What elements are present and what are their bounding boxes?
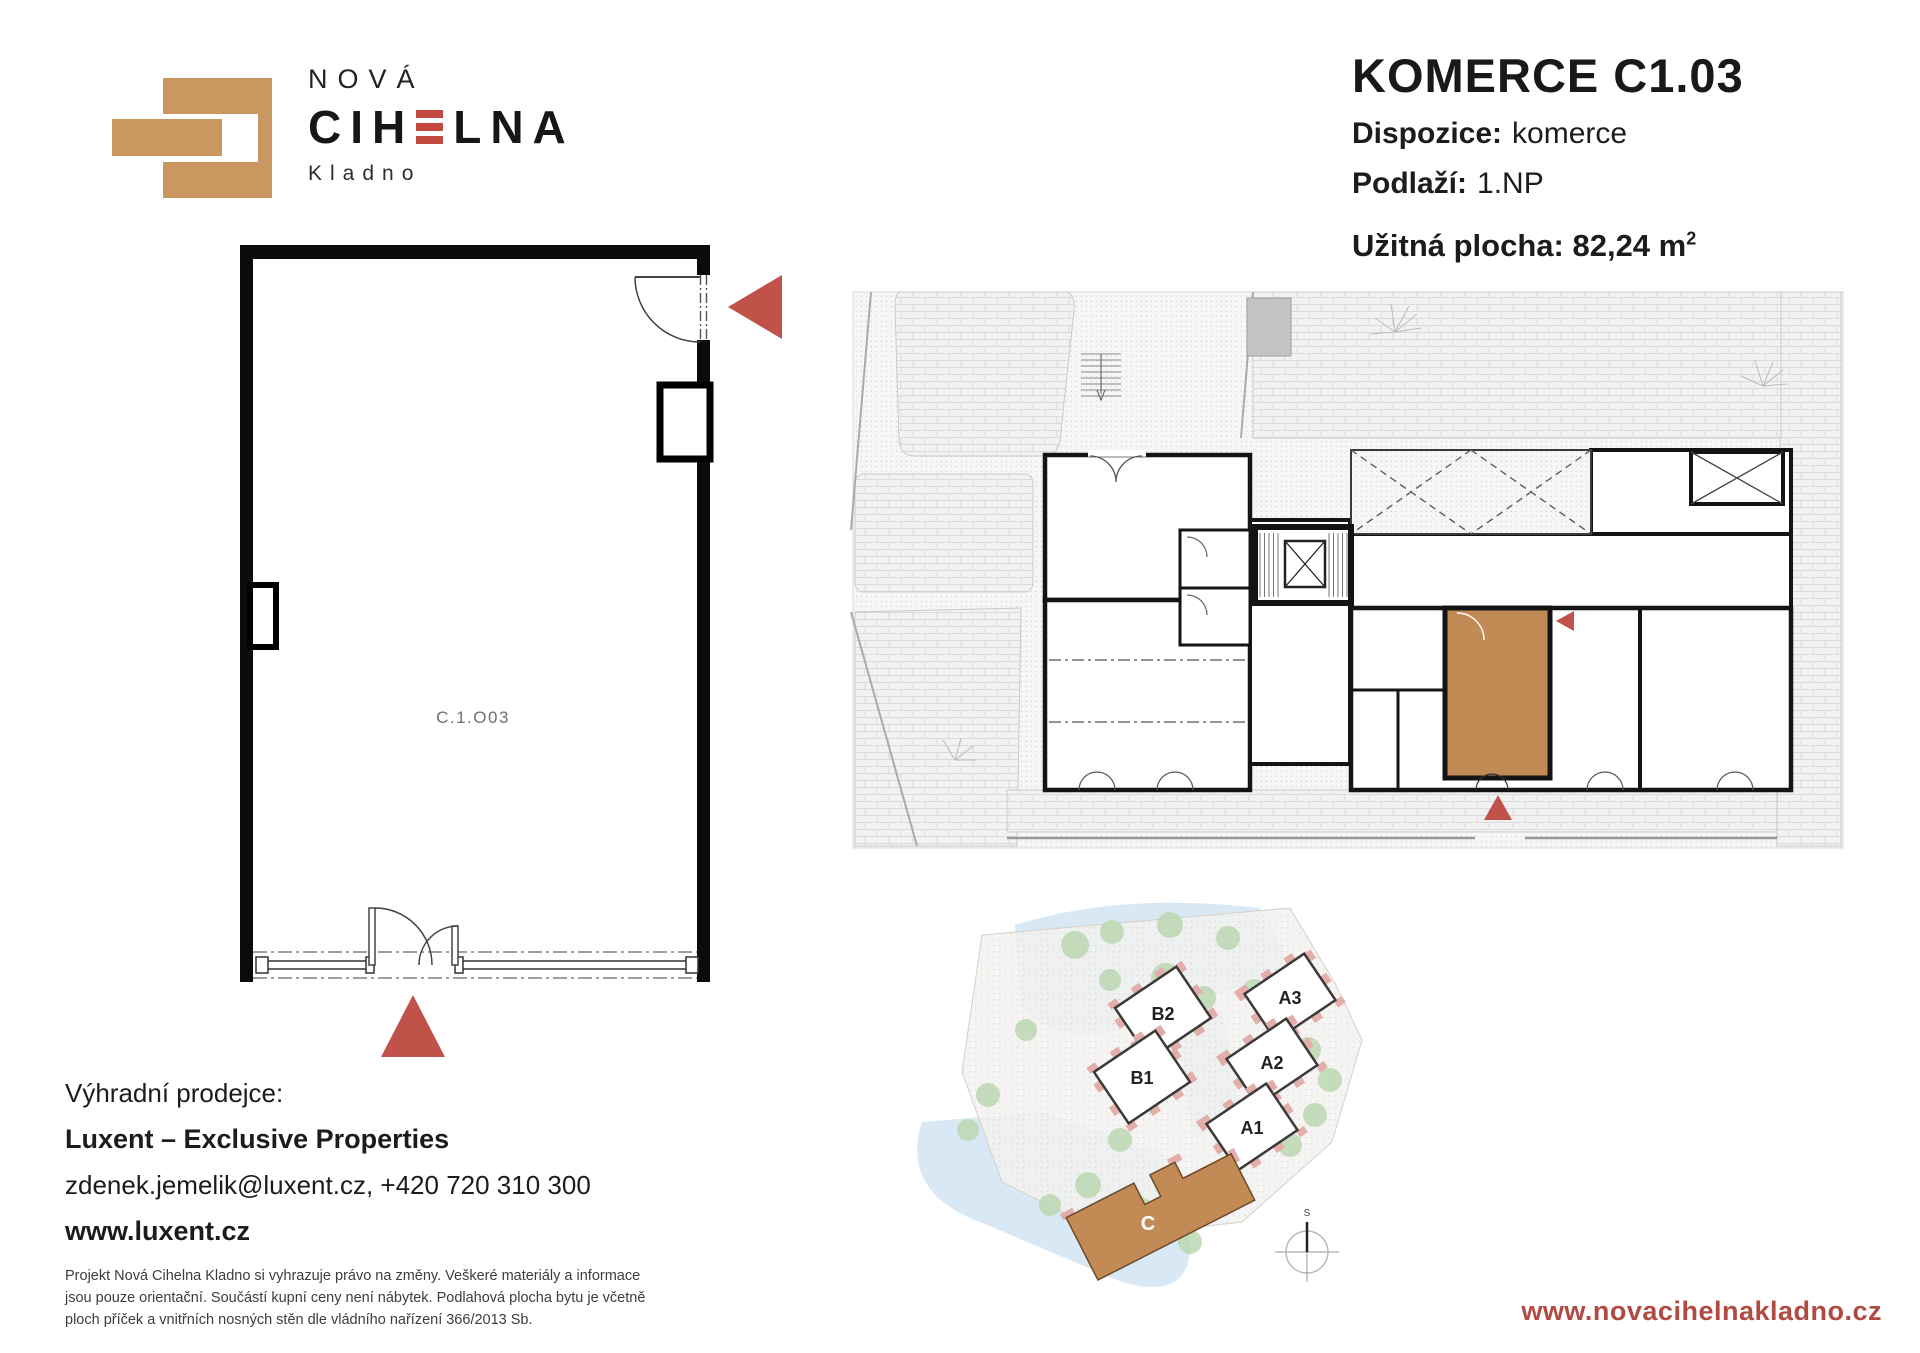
unit-header: KOMERCE C1.03 Dispozice:komerce Podlaží:… bbox=[1352, 48, 1912, 264]
spec-row-dispozice: Dispozice:komerce bbox=[1352, 115, 1912, 153]
building-label: B1 bbox=[1130, 1068, 1153, 1088]
building-label: A3 bbox=[1278, 988, 1301, 1008]
building-label: A1 bbox=[1240, 1118, 1263, 1138]
storefront-glazing bbox=[253, 952, 698, 978]
area-value: 82,24 m bbox=[1572, 228, 1686, 263]
brand-name-main: CIH LNA bbox=[308, 104, 575, 150]
spec-row-area: Užitná plocha: 82,24 m2 bbox=[1352, 228, 1912, 264]
site-plan: B2 B1 A3 A2 A1 C bbox=[860, 890, 1500, 1310]
building-label: B2 bbox=[1151, 1004, 1174, 1024]
area-superscript: 2 bbox=[1686, 229, 1696, 249]
entrance-arrow-icon bbox=[381, 995, 445, 1057]
spec-label: Dispozice: bbox=[1352, 117, 1502, 150]
spec-value: 1.NP bbox=[1477, 167, 1544, 200]
disclaimer-text: Projekt Nová Cihelna Kladno si vyhrazuje… bbox=[65, 1266, 657, 1331]
stair-core bbox=[1255, 527, 1351, 603]
brand-name-suffix: LNA bbox=[453, 104, 575, 150]
spec-value: komerce bbox=[1512, 117, 1627, 150]
brand-name-top: NOVÁ bbox=[308, 64, 575, 95]
contact-details: zdenek.jemelik@luxent.cz, +420 720 310 3… bbox=[65, 1170, 705, 1201]
spec-row-podlazi: Podlaží:1.NP bbox=[1352, 165, 1912, 203]
area-label: Užitná plocha: bbox=[1352, 228, 1564, 263]
spec-label: Podlaží: bbox=[1352, 167, 1467, 200]
unit-label: C.1.O03 bbox=[436, 708, 510, 727]
storefront-door bbox=[369, 908, 458, 965]
unit-walls bbox=[240, 245, 710, 982]
unit-floor-plan: C.1.O03 bbox=[190, 195, 810, 1075]
compass-label: S bbox=[1304, 1208, 1311, 1219]
page-title: KOMERCE C1.03 bbox=[1352, 48, 1912, 103]
project-website: www.novacihelnakladno.cz bbox=[1430, 1296, 1882, 1327]
brick-logo-icon bbox=[95, 58, 280, 200]
contact-block: Výhradní prodejce: Luxent – Exclusive Pr… bbox=[65, 1078, 705, 1247]
highlighted-unit bbox=[1445, 608, 1550, 790]
building-label: C bbox=[1141, 1213, 1155, 1235]
brand-city: Kladno bbox=[308, 162, 575, 186]
contact-company: Luxent – Exclusive Properties bbox=[65, 1124, 705, 1155]
brand-logo: NOVÁ CIH LNA Kladno bbox=[95, 58, 615, 208]
right-wall-pier bbox=[660, 385, 710, 459]
brand-name-prefix: CIH bbox=[308, 104, 414, 150]
left-wall-pier bbox=[250, 585, 276, 647]
contact-website: www.luxent.cz bbox=[65, 1216, 705, 1247]
compass-icon: S bbox=[1275, 1208, 1339, 1282]
entrance-arrow-icon bbox=[728, 275, 782, 339]
building-floor-plan bbox=[835, 290, 1855, 860]
canopy-slab bbox=[1247, 298, 1291, 356]
entry-door bbox=[635, 275, 707, 342]
building-label: A2 bbox=[1260, 1053, 1283, 1073]
courtyard-skylight bbox=[1351, 450, 1591, 534]
contact-heading: Výhradní prodejce: bbox=[65, 1078, 705, 1109]
brick-e-icon bbox=[416, 110, 443, 144]
flyer-page: NOVÁ CIH LNA Kladno KOMERCE C1.03 Dispoz… bbox=[0, 0, 1920, 1353]
